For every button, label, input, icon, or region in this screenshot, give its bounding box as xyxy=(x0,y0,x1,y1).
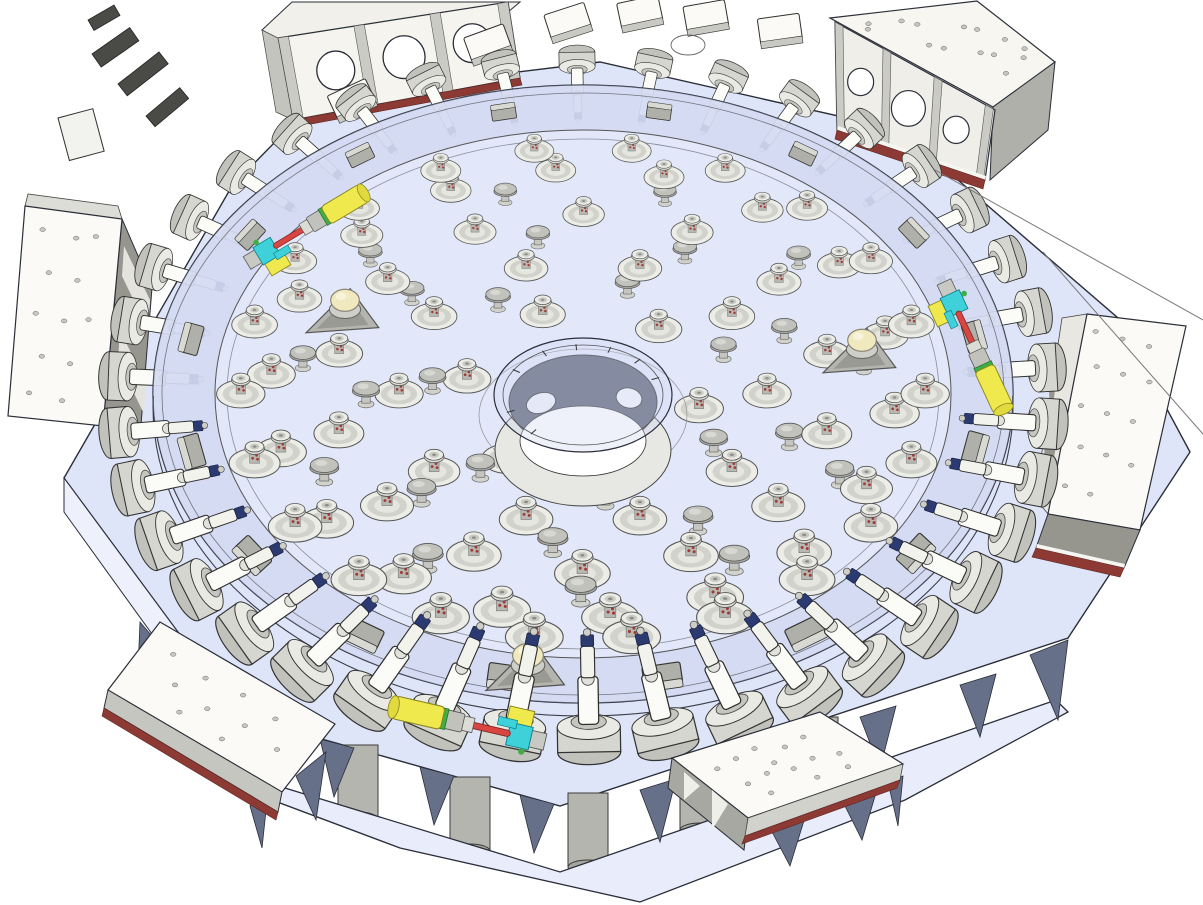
bolt-hole xyxy=(1021,56,1027,60)
far-actuator-box xyxy=(757,13,803,49)
hub-glass-rim xyxy=(494,338,672,452)
bolt-hole xyxy=(941,46,947,50)
mirror-cell-assembly xyxy=(0,0,1203,905)
bolt-hole xyxy=(991,53,997,57)
rim-clamp-box xyxy=(490,102,516,121)
bolt-hole xyxy=(1128,463,1134,467)
bolt-hole xyxy=(1130,419,1136,423)
bolt-hole xyxy=(782,745,788,749)
bolt-hole xyxy=(39,354,45,358)
bolt-hole xyxy=(1062,484,1068,488)
bolt-hole xyxy=(733,757,739,761)
bolt-hole xyxy=(1087,492,1093,496)
cad-viewport xyxy=(0,0,1203,905)
bolt-hole xyxy=(40,228,46,232)
bolt-hole xyxy=(1147,380,1153,384)
bolt-hole xyxy=(177,710,183,714)
base-gusset xyxy=(520,795,554,853)
bolt-hole xyxy=(764,771,770,775)
bolt-hole xyxy=(242,724,248,728)
bolt-hole xyxy=(73,236,79,240)
base-gusset xyxy=(420,767,454,825)
port-hole xyxy=(943,116,969,143)
far-actuator-box xyxy=(617,0,664,33)
bolt-hole xyxy=(67,362,73,366)
bolt-hole xyxy=(170,652,176,656)
bolt-hole xyxy=(273,717,279,721)
bolt-hole xyxy=(899,19,905,23)
port-hole xyxy=(317,51,355,90)
bolt-hole xyxy=(745,782,751,786)
bolt-hole xyxy=(46,271,52,275)
bolt-hole xyxy=(75,278,81,282)
bolt-hole xyxy=(715,767,721,771)
bolt-hole xyxy=(203,676,209,680)
bolt-hole xyxy=(801,735,807,739)
port-hole xyxy=(848,68,874,95)
cream-dome xyxy=(848,329,877,351)
bolt-hole xyxy=(791,767,797,771)
far-actuator-box xyxy=(683,0,730,36)
bolt-hole xyxy=(814,775,820,779)
bolt-hole xyxy=(93,235,99,239)
bolt-hole xyxy=(752,747,758,751)
bolt-hole xyxy=(172,683,178,687)
bolt-hole xyxy=(86,318,92,322)
bolt-hole xyxy=(771,761,777,765)
port-hole xyxy=(891,91,925,127)
bolt-hole xyxy=(59,399,65,403)
bolt-hole xyxy=(240,693,246,697)
bolt-hole xyxy=(61,319,67,323)
central-hub xyxy=(479,338,687,506)
bolt-hole xyxy=(1002,37,1008,41)
bolt-hole xyxy=(1103,453,1109,457)
bolt-hole xyxy=(914,22,920,26)
bolt-hole xyxy=(961,25,967,29)
bolt-hole xyxy=(810,756,816,760)
bolt-hole xyxy=(865,27,871,31)
bolt-hole xyxy=(1146,344,1152,348)
bolt-hole xyxy=(274,748,280,752)
bolt-hole xyxy=(866,22,872,26)
bolt-hole xyxy=(845,765,851,769)
bolt-hole xyxy=(33,311,39,315)
bolt-hole xyxy=(204,707,210,711)
bolt-hole xyxy=(768,791,774,795)
bolt-hole xyxy=(1022,47,1028,51)
bolt-hole xyxy=(1078,404,1084,408)
bolt-hole xyxy=(837,751,843,755)
bolt-hole xyxy=(219,737,225,741)
bolt-hole xyxy=(974,27,980,31)
actuator-cluster-silhouette xyxy=(58,5,189,161)
bolt-hole xyxy=(1104,412,1110,416)
far-actuator-box xyxy=(544,2,593,44)
bolt-hole xyxy=(1093,329,1099,333)
bolt-hole xyxy=(926,43,932,47)
cream-dome xyxy=(331,289,360,311)
bolt-hole xyxy=(1078,445,1084,449)
bolt-hole xyxy=(978,51,984,55)
rim-clamp-box xyxy=(646,102,672,121)
bolt-hole xyxy=(26,391,32,395)
bolt-hole xyxy=(1003,71,1009,75)
bolt-hole xyxy=(1120,372,1126,376)
bolt-hole xyxy=(1094,365,1100,369)
